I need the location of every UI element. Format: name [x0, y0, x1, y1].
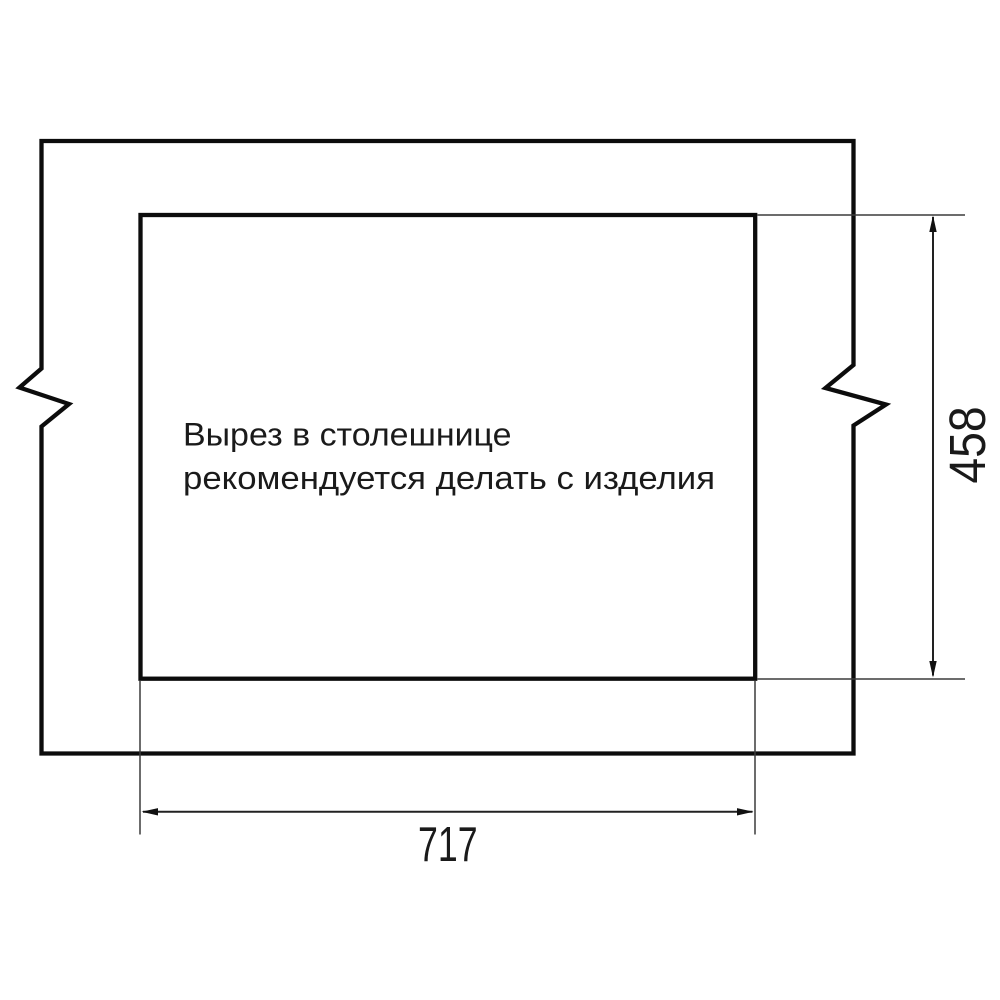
svg-text:рекомендуется делать с изделия: рекомендуется делать с изделия [183, 460, 715, 496]
svg-text:Вырез в столешнице: Вырез в столешнице [183, 417, 512, 453]
svg-text:717: 717 [418, 817, 478, 872]
svg-text:458: 458 [939, 406, 996, 483]
